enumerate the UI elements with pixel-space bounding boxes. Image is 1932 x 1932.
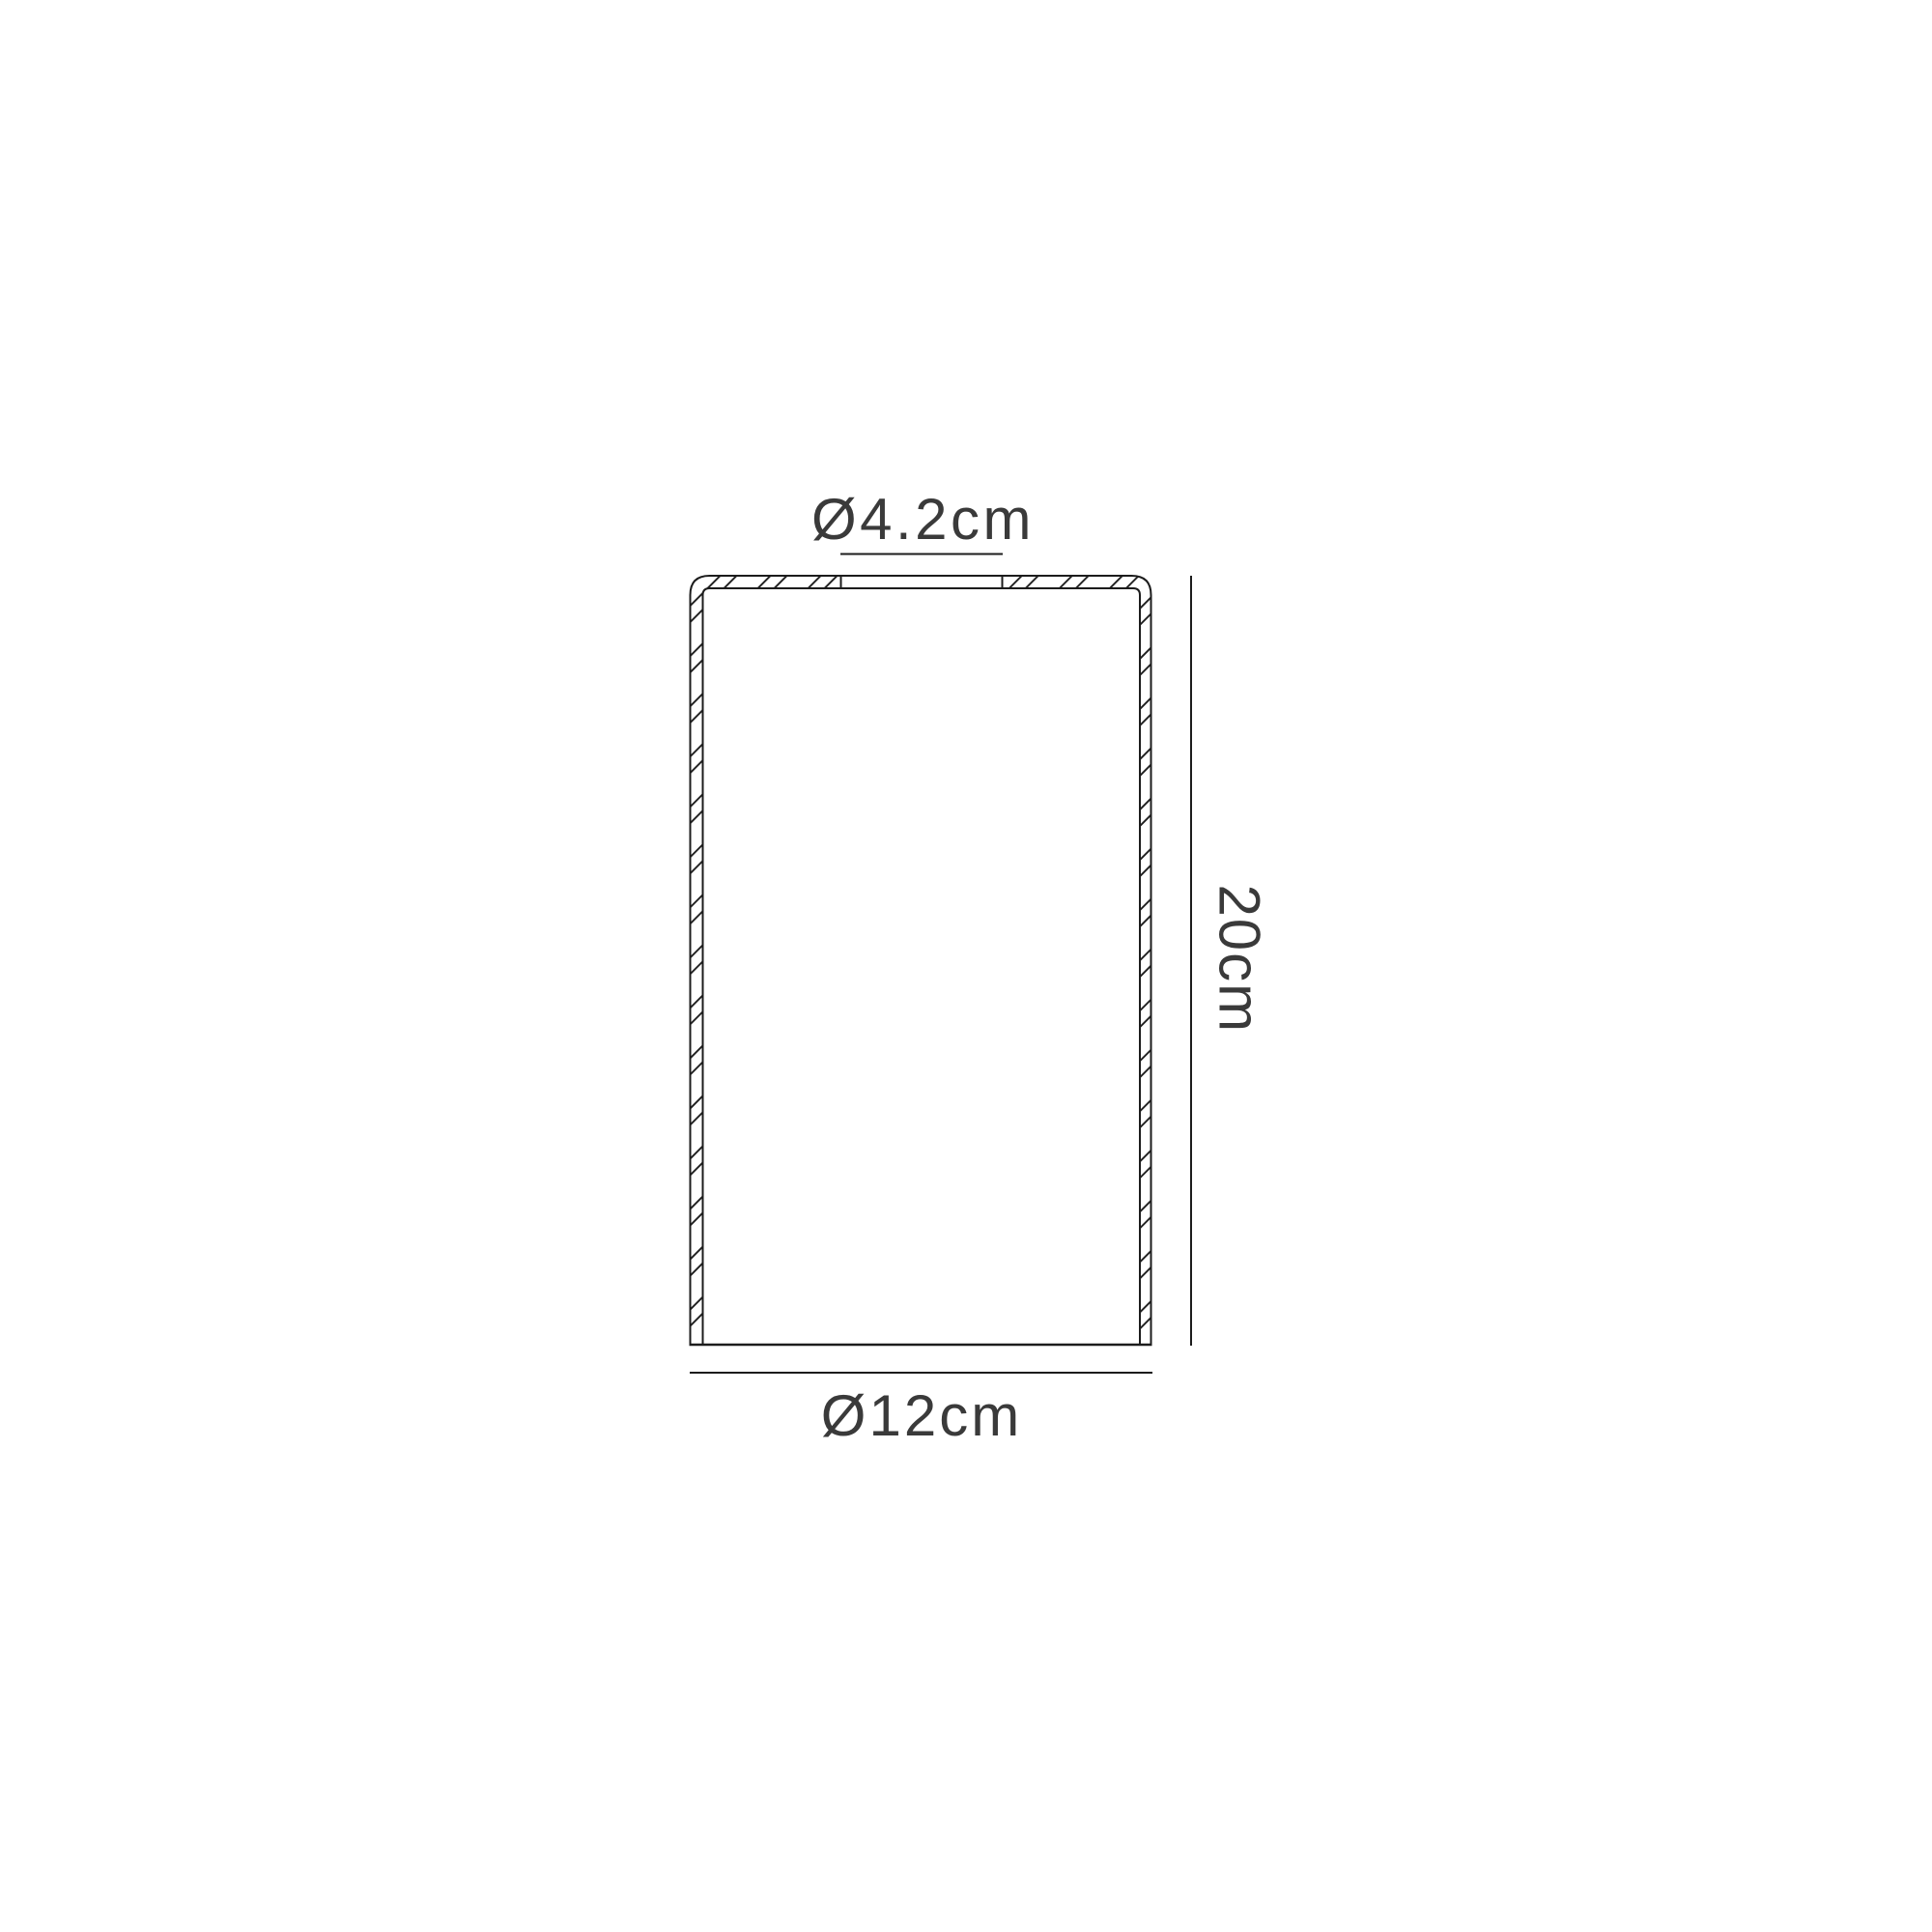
svg-text:Ø4.2cm: Ø4.2cm bbox=[811, 487, 1035, 552]
svg-text:20cm: 20cm bbox=[1207, 884, 1272, 1034]
svg-text:Ø12cm: Ø12cm bbox=[821, 1383, 1022, 1448]
